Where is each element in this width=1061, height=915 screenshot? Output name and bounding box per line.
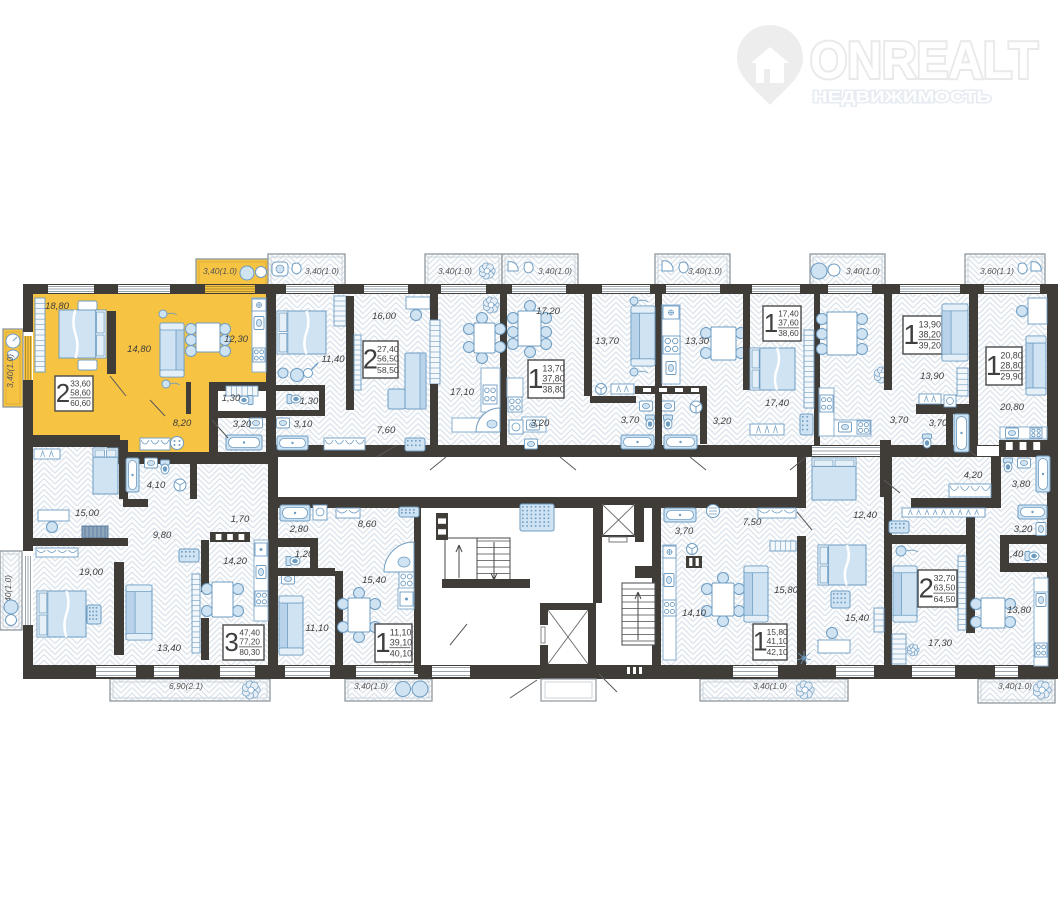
svg-text:3,70: 3,70 [929,418,948,429]
svg-text:64,50: 64,50 [934,594,956,604]
svg-text:17,40: 17,40 [765,398,789,409]
svg-text:3,40(1.0): 3,40(1.0) [998,681,1032,691]
svg-text:1,20: 1,20 [295,549,314,560]
svg-text:12,40: 12,40 [853,510,877,521]
svg-text:8,20: 8,20 [173,418,192,429]
svg-text:11,10: 11,10 [390,627,412,637]
svg-text:13,40: 13,40 [157,643,181,654]
svg-text:33,60: 33,60 [70,380,91,389]
svg-text:12,30: 12,30 [224,334,248,345]
svg-text:7,50: 7,50 [743,517,762,528]
svg-text:17,20: 17,20 [536,306,560,317]
svg-text:41,10: 41,10 [767,636,788,646]
svg-text:19,00: 19,00 [79,567,103,578]
svg-text:63,50: 63,50 [934,583,956,593]
svg-text:1,30: 1,30 [300,396,319,407]
svg-text:3,40(1.0): 3,40(1.0) [846,266,880,276]
svg-text:2: 2 [363,343,378,374]
svg-text:3,20: 3,20 [1014,524,1033,535]
svg-text:3,20: 3,20 [713,416,732,427]
svg-text:18,80: 18,80 [45,301,69,312]
svg-text:38,20: 38,20 [919,329,941,339]
svg-text:3,40(1.0): 3,40(1.0) [438,266,472,276]
svg-text:32,70: 32,70 [934,573,956,583]
svg-text:3,40(1.0): 3,40(1.0) [5,354,15,388]
svg-text:37,80: 37,80 [542,373,564,383]
svg-text:15,40: 15,40 [845,613,869,624]
svg-text:3,80: 3,80 [1012,479,1031,490]
svg-text:38,60: 38,60 [778,329,799,338]
svg-text:9,80: 9,80 [153,530,172,541]
svg-text:1: 1 [986,350,1002,381]
svg-text:17,10: 17,10 [450,387,474,398]
svg-text:1: 1 [753,627,768,657]
svg-text:1,70: 1,70 [231,514,250,525]
svg-text:77,20: 77,20 [239,638,260,647]
svg-text:40,10: 40,10 [390,649,412,659]
svg-text:2: 2 [56,380,70,408]
svg-text:37,60: 37,60 [778,319,799,328]
svg-text:ONREALT: ONREALT [810,32,1038,90]
svg-text:3,40(1.0): 3,40(1.0) [753,681,787,691]
svg-text:42,10: 42,10 [767,647,788,657]
svg-text:3: 3 [224,629,238,657]
svg-text:11,10: 11,10 [305,623,329,634]
svg-text:14,80: 14,80 [127,344,151,355]
svg-text:7,60: 7,60 [377,425,396,436]
svg-text:14,10: 14,10 [682,608,706,619]
svg-text:13,30: 13,30 [685,336,709,347]
svg-text:20,80: 20,80 [1000,350,1022,360]
svg-text:3,70: 3,70 [621,415,640,426]
svg-text:56,50: 56,50 [377,354,399,364]
svg-text:15,00: 15,00 [75,508,99,519]
svg-text:4,20: 4,20 [964,470,983,481]
svg-text:6,90(2.1): 6,90(2.1) [169,681,203,691]
svg-text:60,60: 60,60 [70,399,91,408]
svg-text:2: 2 [919,572,934,603]
svg-text:1: 1 [764,310,778,338]
svg-text:13,70: 13,70 [595,336,619,347]
svg-text:16,00: 16,00 [372,311,396,322]
svg-text:38,80: 38,80 [542,385,564,395]
svg-text:14,20: 14,20 [223,556,247,567]
svg-text:1,30: 1,30 [222,393,241,404]
svg-text:3,20: 3,20 [531,418,550,429]
svg-text:20,80: 20,80 [999,402,1024,413]
svg-text:15,80: 15,80 [774,585,798,596]
svg-text:17,30: 17,30 [928,638,952,649]
svg-text:3,60(1.1): 3,60(1.1) [980,266,1014,276]
svg-text:58,50: 58,50 [377,365,399,375]
svg-text:28,80: 28,80 [1000,360,1022,370]
svg-text:39,20: 39,20 [919,341,941,351]
svg-text:13,90: 13,90 [920,371,944,382]
svg-text:2,80: 2,80 [289,524,309,535]
svg-text:39,10: 39,10 [390,637,412,647]
svg-text:80,30: 80,30 [239,648,260,657]
svg-text:13,70: 13,70 [542,363,564,373]
svg-text:3,20: 3,20 [233,419,252,430]
svg-text:3,40(1.0): 3,40(1.0) [203,266,237,276]
svg-text:3,70: 3,70 [890,415,909,426]
svg-text:8,60: 8,60 [358,519,377,530]
svg-text:1: 1 [375,627,391,658]
svg-text:15,40: 15,40 [362,575,386,586]
svg-text:29,90: 29,90 [1000,372,1022,382]
svg-text:3,40(1.0): 3,40(1.0) [688,266,722,276]
svg-text:НЕДВИЖИМОСТЬ: НЕДВИЖИМОСТЬ [813,89,991,106]
svg-text:13,80: 13,80 [1007,605,1031,616]
svg-text:1: 1 [903,319,919,350]
svg-text:27,40: 27,40 [377,344,399,354]
svg-text:1: 1 [528,363,544,394]
svg-text:3,40(1.0): 3,40(1.0) [538,266,572,276]
svg-text:13,90: 13,90 [919,319,941,329]
svg-text:47,40: 47,40 [239,629,260,638]
svg-text:3,70: 3,70 [675,526,694,537]
svg-text:4,10: 4,10 [147,480,166,491]
svg-text:58,60: 58,60 [70,389,91,398]
svg-text:3,40(1.0): 3,40(1.0) [305,266,339,276]
svg-text:3,10: 3,10 [294,419,313,430]
svg-text:17,40: 17,40 [778,310,799,319]
svg-text:11,40: 11,40 [321,354,345,365]
svg-text:3,40(1.0): 3,40(1.0) [354,681,388,691]
